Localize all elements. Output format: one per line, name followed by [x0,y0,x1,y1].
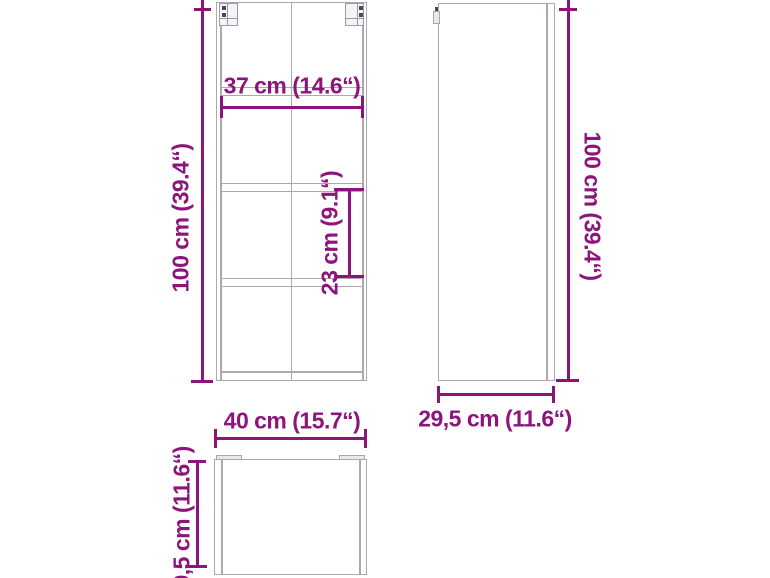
top-depth-dim-label: 29,5 cm (11.6“) [171,446,194,578]
front-view-right-panel-line [362,3,364,380]
top-view-right-panel-line [359,460,361,574]
top-depth-dim-line [196,461,199,567]
dim-tick [214,429,217,448]
top-width-dim-line [215,437,367,440]
screw-dot [359,6,363,10]
front-width-dim-label: 37 cm (14.6“) [224,75,361,98]
screw-dot [222,6,226,10]
cabinet-dimension-diagram: 100 cm (39.4“) 37 cm (14.6“) 23 cm (9.1“… [0,0,770,578]
dim-tick [191,380,213,383]
top-width-dim-label: 40 cm (15.7“) [224,410,361,433]
bracket-divider-line [227,4,228,25]
wall-mount-bracket-left-icon [219,3,238,26]
side-height-dim-label: 100 cm (39.4“) [581,132,604,281]
side-depth-dim-label: 29,5 cm (11.6“) [418,408,572,431]
front-compartment-dim-label: 23 cm (9.1“) [319,171,342,295]
dim-tick [556,379,579,382]
dim-tick [552,386,555,403]
front-compartment-dim-line [348,190,351,278]
top-view-outline [214,459,367,575]
wall-mount-bracket-right-icon [345,3,364,26]
side-view-back-panel-line [546,4,548,380]
bracket-step-line [220,18,237,19]
side-depth-dim-line [438,393,555,396]
side-height-dim-line [567,0,570,382]
dim-tick [361,96,364,118]
side-wall-bracket-icon [433,11,440,24]
front-width-dim-line [221,106,364,109]
top-view-left-panel-line [221,460,223,574]
dim-tick [559,8,577,11]
bracket-divider-line [357,4,358,25]
dim-tick [220,96,223,118]
screw-dot [222,13,226,17]
dim-tick [194,8,211,11]
front-height-dim-label: 100 cm (39.4“) [170,144,193,293]
front-view-bottom-panel-line [221,371,362,373]
bracket-step-line [346,18,363,19]
screw-dot [359,13,363,17]
side-view-outline [438,3,555,381]
dim-tick [364,429,367,448]
front-height-dim-line [201,0,204,383]
dim-tick [437,386,440,403]
